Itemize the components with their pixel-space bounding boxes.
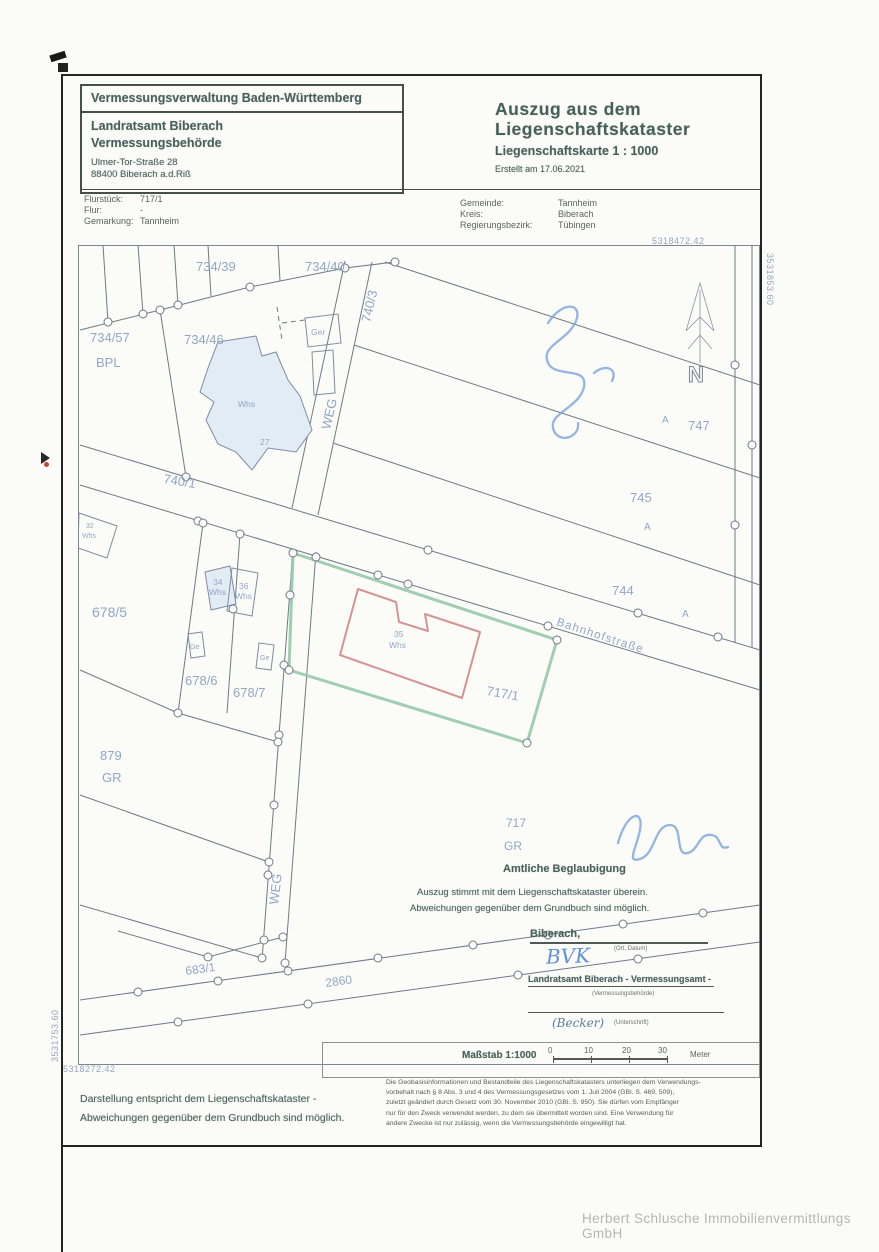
scale-bar-tick <box>553 1056 554 1063</box>
scale-bar-tick <box>667 1056 668 1063</box>
usage-label-gr-717: GR <box>504 839 522 853</box>
margin-mark-red <box>44 462 49 467</box>
house-number-32: 32 <box>86 523 94 530</box>
gemeinde-label: Gemeinde: <box>460 198 558 209</box>
usage-label-bpl: BPL <box>96 355 121 370</box>
signature-hint: (Unterschrift) <box>614 1020 649 1026</box>
parcel-label-678-6: 678/6 <box>185 673 218 688</box>
road-label-740-3: 740/3 <box>358 289 380 324</box>
kreis-label: Kreis: <box>460 209 558 220</box>
grid-coordinate-left: 3531753.60 <box>50 1009 60 1062</box>
flur-label: Flur: <box>84 205 140 216</box>
gemarkung-value: Tannheim <box>140 216 179 226</box>
scale-tick-10: 10 <box>584 1046 593 1055</box>
parcel-label-734-57: 734/57 <box>90 330 130 345</box>
parcel-label-734-39: 734/39 <box>196 259 236 274</box>
document-subtitle: Liegenschaftskarte 1 : 1000 <box>495 144 690 158</box>
parcel-label-717-1: 717/1 <box>485 683 520 703</box>
legal-line-2: vorbehalt nach § 8 Abs. 3 und 4 des Verm… <box>386 1088 701 1098</box>
signature-name: (Becker) <box>552 1016 604 1030</box>
parcel-label-879: 879 <box>100 748 122 763</box>
scale-box <box>322 1042 760 1078</box>
grid-coordinate-right: 3531853.60 <box>765 253 775 306</box>
building-label-whs-36: Whs <box>235 591 252 601</box>
signature-line <box>528 1012 724 1013</box>
bottom-note: Darstellung entspricht dem Liegenschafts… <box>80 1090 344 1129</box>
parcel-boundaries <box>80 245 760 1035</box>
grid-coordinate-bottom: 5318272.42 <box>63 1064 116 1074</box>
scan-border-left <box>61 74 63 1252</box>
pen-scribbles <box>547 307 728 860</box>
street-label-bahnhofstrasse: Bahnhofstraße <box>555 616 645 656</box>
scan-border-top <box>61 74 762 76</box>
office-name: Landratsamt Biberach <box>91 118 393 135</box>
highlighted-parcel-717-1-boundary <box>289 553 557 743</box>
certification-place: Biberach, <box>530 928 708 944</box>
north-arrow-icon: N <box>686 283 714 387</box>
scale-bar-tick <box>591 1056 592 1063</box>
parcel-info-right: Gemeinde:Tannheim Kreis:Biberach Regieru… <box>460 198 597 231</box>
created-date: Erstellt am 17.06.2021 <box>495 164 690 174</box>
legal-line-1: Die Geobasisinformationen und Bestandtei… <box>386 1078 701 1088</box>
house-number-27: 27 <box>260 437 270 447</box>
usage-symbol-a-747: A <box>662 415 669 426</box>
gemeinde-value: Tannheim <box>558 198 597 208</box>
usage-symbol-a-744: A <box>682 609 689 620</box>
building-label-whs-35: Whs <box>389 640 406 650</box>
highlighted-building-outline <box>340 589 480 698</box>
authority-name: Vermessungsverwaltung Baden-Württemberg <box>82 86 402 113</box>
parcel-label-2860: 2860 <box>324 972 353 990</box>
flurstueck-value: 717/1 <box>140 194 163 204</box>
legal-text: Die Geobasisinformationen und Bestandtei… <box>386 1078 701 1129</box>
scan-border-right <box>760 74 762 1147</box>
office-hint: (Vermessungsbehörde) <box>592 991 654 997</box>
building-label-whs-27: Whs <box>238 399 255 409</box>
scan-artifact <box>58 63 68 72</box>
usage-symbol-a-745: A <box>644 522 651 533</box>
path-label-weg-bottom: WEG <box>266 873 285 906</box>
certification-heading: Amtliche Beglaubigung <box>503 863 626 875</box>
legal-line-5: andere Zwecke ist nur zulässig, wenn die… <box>386 1119 701 1129</box>
regierungsbezirk-label: Regierungsbezirk: <box>460 220 558 231</box>
building-label-ger: Ger <box>311 327 325 337</box>
usage-label-gr-879: GR <box>102 770 122 785</box>
parcel-label-678-5: 678/5 <box>92 604 127 620</box>
map-labels: 734/39 734/40 734/57 BPL 734/46 Ger 740/… <box>82 259 710 990</box>
certification-office: Landratsamt Biberach - Vermessungsamt - <box>528 974 714 987</box>
regierungsbezirk-value: Tübingen <box>558 220 596 230</box>
scale-tick-20: 20 <box>622 1046 631 1055</box>
house-number-35: 35 <box>394 629 404 639</box>
flurstueck-label: Flurstück: <box>84 194 140 205</box>
document-title-line1: Auszug aus dem <box>495 99 690 119</box>
north-letter: N <box>688 362 704 387</box>
kreis-value: Biberach <box>558 209 594 219</box>
bottom-note-line1: Darstellung entspricht dem Liegenschafts… <box>80 1090 344 1109</box>
road-label-740-1: 740/1 <box>163 471 197 491</box>
office-street: Ulmer-Tor-Straße 28 <box>91 157 393 169</box>
scale-tick-30: 30 <box>658 1046 667 1055</box>
issuing-authority-box: Vermessungsverwaltung Baden-Württemberg … <box>80 84 404 194</box>
bottom-note-line2: Abweichungen gegenüber dem Grundbuch sin… <box>80 1109 344 1128</box>
office-city: 88400 Biberach a.d.Riß <box>91 169 393 181</box>
building-label-whs-34: Whs <box>209 587 226 597</box>
parcel-label-683-1: 683/1 <box>184 960 216 978</box>
scale-bar <box>553 1058 668 1060</box>
gemarkung-label: Gemarkung: <box>84 216 140 227</box>
scale-label: Maßstab 1:1000 <box>462 1050 536 1061</box>
place-hint: (Ort, Datum) <box>614 946 647 952</box>
signature-scribble <box>618 816 728 860</box>
pen-scribble-accent <box>594 368 614 381</box>
parcel-label-717: 717 <box>506 816 526 830</box>
house-number-34: 34 <box>213 577 223 587</box>
scale-bar-tick <box>629 1056 630 1063</box>
house-number-36: 36 <box>239 581 249 591</box>
scale-unit: Meter <box>690 1050 710 1059</box>
parcel-label-734-40: 734/40 <box>305 259 345 274</box>
parcel-info-left: Flurstück:717/1 Flur:- Gemarkung:Tannhei… <box>84 194 179 227</box>
building-label-whs-32: Whs <box>82 533 97 540</box>
building-label-ge-1: Ge <box>190 644 199 651</box>
scan-border-bottom <box>61 1145 762 1147</box>
document-title-block: Auszug aus dem Liegenschaftskataster Lie… <box>495 99 690 174</box>
document-title-line2: Liegenschaftskataster <box>495 119 690 139</box>
parcel-label-745: 745 <box>630 490 652 505</box>
parcel-label-744: 744 <box>612 583 634 598</box>
office-department: Vermessungsbehörde <box>91 135 393 152</box>
header-divider <box>80 189 760 190</box>
company-watermark: Herbert Schlusche Immobilienvermittlungs… <box>582 1211 879 1241</box>
flur-value: - <box>140 205 143 215</box>
parcel-label-747: 747 <box>688 418 710 433</box>
parcel-label-678-7: 678/7 <box>233 685 266 700</box>
stamp-initials-bvk: BVK <box>546 943 591 969</box>
building-label-ge-2: Ge <box>260 655 269 662</box>
scale-tick-0: 0 <box>548 1046 552 1055</box>
legal-line-4: nur für den Zweck verwendet werden, zu d… <box>386 1109 701 1119</box>
scanned-cadastral-document: Vermessungsverwaltung Baden-Württemberg … <box>0 0 879 1252</box>
scan-artifact <box>49 51 66 63</box>
parcel-label-734-46: 734/46 <box>184 332 224 347</box>
certification-line2: Abweichungen gegenüber dem Grundbuch sin… <box>410 903 649 914</box>
certification-line1: Auszug stimmt mit dem Liegenschaftskatas… <box>417 887 648 898</box>
legal-line-3: zuletzt geändert durch Gesetz vom 30. No… <box>386 1098 701 1108</box>
